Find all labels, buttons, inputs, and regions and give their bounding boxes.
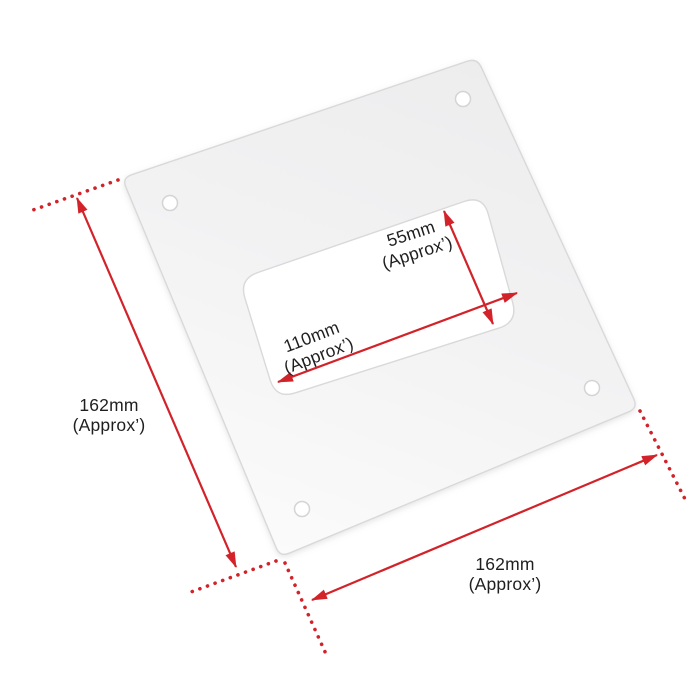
screw-hole-bottom-left [295, 502, 310, 517]
product-dimension-diagram: 162mm (Approx’) 162mm (Approx’) 110mm (A… [0, 0, 700, 700]
dimension-label-outer-width: 162mm (Approx’) [425, 554, 585, 594]
dimension-value: 162mm [39, 395, 179, 415]
dimension-label-outer-height: 162mm (Approx’) [39, 395, 179, 435]
dimension-qualifier: (Approx’) [425, 574, 585, 594]
extension-dotted-line-top-left [33, 180, 118, 210]
screw-hole-top-left [163, 196, 178, 211]
screw-hole-top-right [456, 92, 471, 107]
dimension-qualifier: (Approx’) [39, 415, 179, 435]
dimension-value: 162mm [425, 554, 585, 574]
extension-dotted-line-bottom-left-horizontal [191, 561, 276, 592]
extension-dotted-line-bottom-left-vertical [285, 563, 326, 654]
screw-hole-bottom-right [585, 381, 600, 396]
extension-dotted-line-bottom-right [640, 411, 686, 501]
